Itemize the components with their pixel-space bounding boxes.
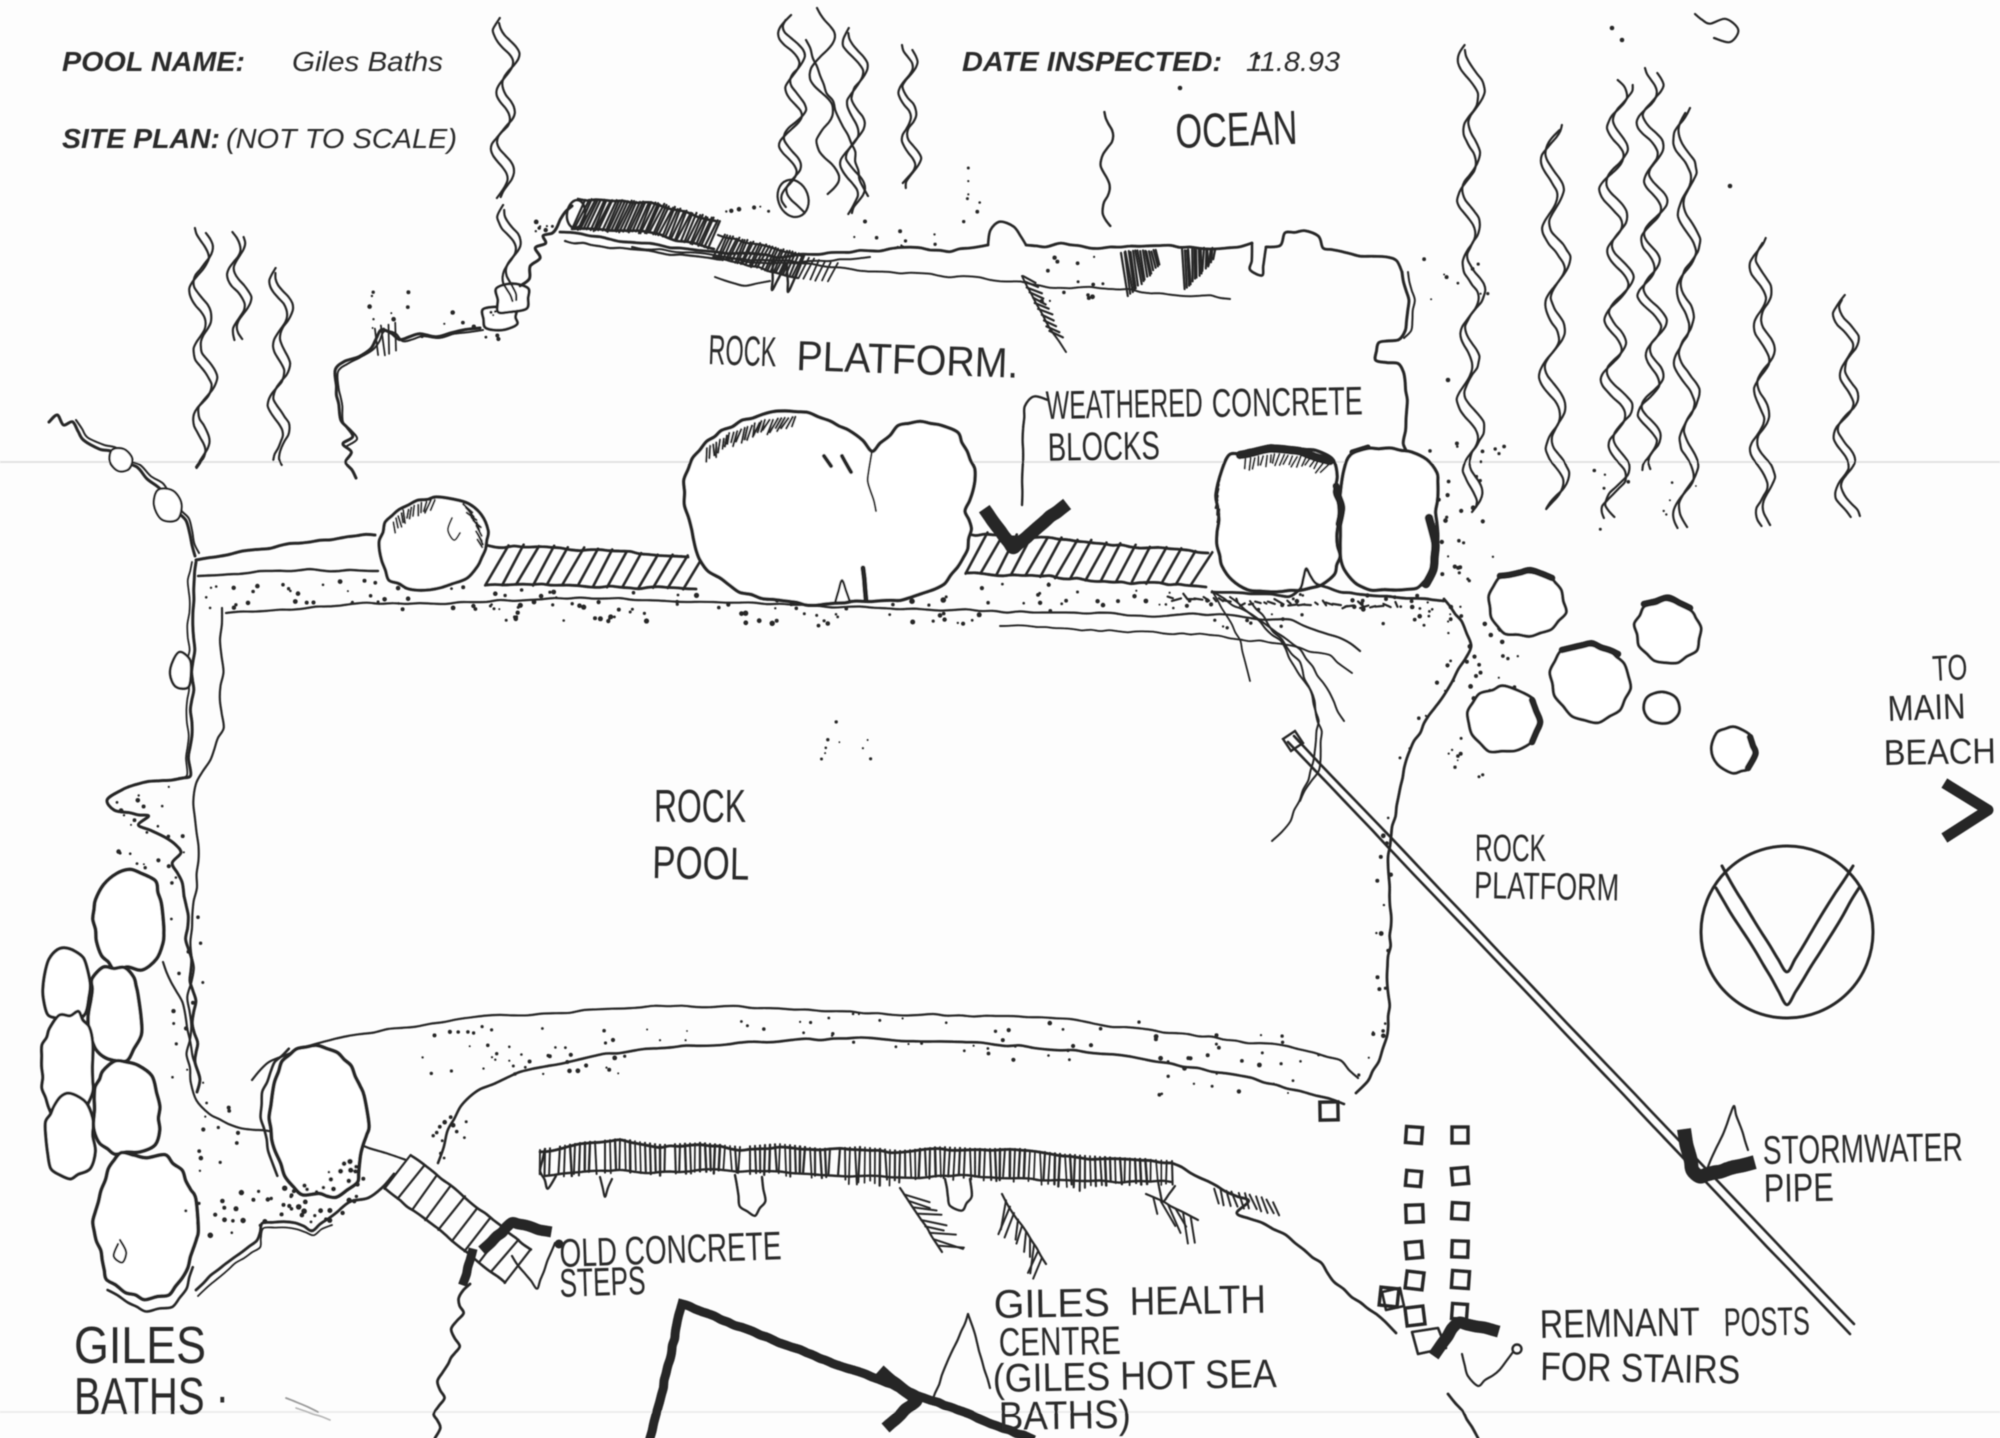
svg-text:11.8.93: 11.8.93 (1246, 46, 1340, 77)
svg-text:PLATFORM.: PLATFORM. (796, 332, 1020, 387)
svg-text:POOL: POOL (652, 836, 750, 890)
svg-text:Giles Baths: Giles Baths (292, 46, 443, 77)
svg-text:CONCRETE: CONCRETE (1211, 379, 1363, 426)
svg-text:TO: TO (1931, 646, 1968, 689)
svg-text:POSTS: POSTS (1723, 1300, 1810, 1345)
svg-text:ROCK: ROCK (708, 326, 778, 375)
svg-text:BATHS ·: BATHS · (74, 1368, 229, 1426)
svg-text:WEATHERED: WEATHERED (1045, 381, 1203, 428)
svg-text:OCEAN: OCEAN (1175, 102, 1299, 159)
svg-text:PLATFORM: PLATFORM (1474, 865, 1620, 910)
svg-text:BEACH: BEACH (1883, 730, 1996, 773)
svg-text:STEPS: STEPS (559, 1259, 646, 1306)
svg-text:ROCK: ROCK (1475, 828, 1546, 870)
svg-text:POOL NAME:: POOL NAME: (62, 46, 245, 77)
svg-text:BATHS): BATHS) (998, 1393, 1131, 1438)
svg-text:FOR STAIRS: FOR STAIRS (1540, 1345, 1741, 1392)
svg-text:REMNANT: REMNANT (1539, 1300, 1700, 1347)
svg-text:PIPE: PIPE (1763, 1166, 1834, 1211)
svg-text:ROCK: ROCK (654, 780, 746, 832)
svg-text:GILES: GILES (74, 1317, 206, 1375)
svg-text:(NOT TO SCALE): (NOT TO SCALE) (226, 123, 457, 154)
svg-text:HEALTH: HEALTH (1129, 1278, 1266, 1324)
svg-text:DATE INSPECTED:: DATE INSPECTED: (962, 46, 1222, 77)
svg-text:BLOCKS: BLOCKS (1047, 424, 1160, 470)
svg-text:SITE PLAN:: SITE PLAN: (62, 123, 220, 154)
svg-text:MAIN: MAIN (1887, 685, 1966, 729)
